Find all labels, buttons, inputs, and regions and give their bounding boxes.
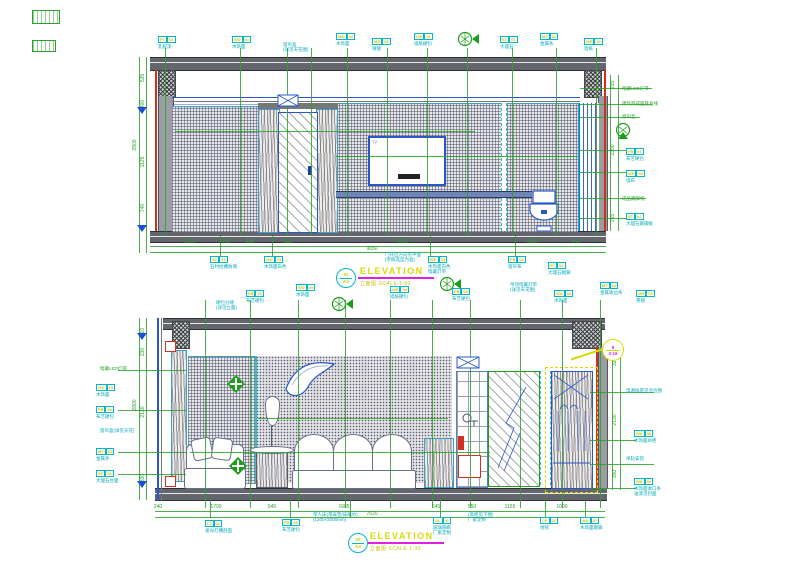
dimension-text: 2800 xyxy=(132,139,138,150)
level-marker-icon xyxy=(136,332,148,341)
material-tag: WD03木饰面白色 xyxy=(264,256,287,269)
material-tag-desc: 大理石 xyxy=(500,44,514,49)
material-tag-desc: 乳胶漆 xyxy=(158,44,172,49)
stone-mosaic-wall xyxy=(172,106,258,232)
material-tag-desc: 吊顶暗藏灯带 (详见天花图) xyxy=(510,282,537,292)
dimension-line xyxy=(175,131,475,132)
material-tag-desc: 单人床(带床垫/床尾巾) (1200×2000mm) xyxy=(313,512,358,522)
material-tag-desc: 木饰面 xyxy=(96,392,110,397)
elevation-title: ELEVATION xyxy=(360,266,424,276)
material-tag: 暗藏LED灯带 xyxy=(622,86,649,91)
dimension-text: 740 xyxy=(140,204,146,212)
dimension-text: 450 xyxy=(222,239,230,245)
material-tag: MT02金属收边条 xyxy=(600,282,623,295)
material-tag-desc: 木饰面白色 xyxy=(264,264,287,269)
leader-line xyxy=(146,318,147,500)
dimension-text: 550 xyxy=(468,504,476,510)
material-tag-desc: 发光灯槽剖面 xyxy=(205,528,232,533)
title-underline xyxy=(358,277,434,279)
material-tag: PT01乳胶漆 xyxy=(158,36,176,49)
level-marker-icon xyxy=(136,224,148,233)
elevation-subtitle: 立面图 SCALE 1:30 xyxy=(370,545,421,552)
leader-line xyxy=(596,48,597,236)
leader-line xyxy=(240,48,241,236)
dimension-line xyxy=(590,488,636,489)
leader-line xyxy=(618,75,619,231)
material-tag: MR02茶镜 xyxy=(636,290,655,303)
dimension-line xyxy=(190,452,490,453)
material-tag: 窗帘盒 xyxy=(622,114,636,119)
material-tag-desc: 墙布 xyxy=(626,178,635,183)
material-tag-desc: (高柜见下图) 厂家定制 xyxy=(468,512,494,522)
dimension-text: 7620 xyxy=(366,511,377,517)
dimension-text: 2800 xyxy=(132,399,138,410)
dimension-text: 2350 xyxy=(610,144,616,155)
drawing-number: 01 xyxy=(343,272,348,277)
wall-artwork xyxy=(282,357,338,403)
material-tag-desc: 暗藏LED灯带 xyxy=(100,366,127,371)
material-tag-desc: 木饰面 xyxy=(336,41,350,46)
wall-section-hatch xyxy=(572,321,602,349)
dimension-line xyxy=(118,410,186,411)
material-tag: (高柜见下图) 厂家定制 xyxy=(468,512,494,522)
material-tag-desc: 墙纸硬包 xyxy=(390,294,408,299)
dimension-text: 1000 xyxy=(556,504,567,510)
dimension-text: 235 xyxy=(610,81,616,89)
material-tag-desc: 电源插座见点位图 xyxy=(626,388,662,393)
title-bubble: 02 A3 xyxy=(348,533,368,553)
drawing-number: 02 xyxy=(355,537,360,542)
dimension-line xyxy=(580,150,626,151)
material-tag: WD04木饰面白色 暗藏灯带 xyxy=(428,256,451,274)
material-tag-desc: 硬包分缝 (详见立面) xyxy=(216,300,237,310)
leader-line xyxy=(545,500,546,518)
leader-line xyxy=(512,48,513,236)
top-elev-floor-slab xyxy=(150,231,606,243)
faucet-icon xyxy=(462,412,480,428)
section-marker-icon xyxy=(330,294,354,314)
sofa-pillow xyxy=(190,436,214,462)
material-tag-desc: 木饰面 xyxy=(232,44,246,49)
dimension-text: 240 xyxy=(154,504,162,510)
vent-symbol xyxy=(456,356,480,369)
wall-rail xyxy=(336,191,532,198)
detail-callout: 8 3-16 xyxy=(602,339,624,361)
material-tag: FB03布艺硬包 xyxy=(246,290,264,303)
section-marker-icon xyxy=(614,120,638,140)
material-tag-desc: 布艺硬包 xyxy=(626,156,644,161)
leader-line xyxy=(287,48,288,236)
sheet-mark xyxy=(32,10,60,24)
dimension-text: 2130 xyxy=(612,414,618,425)
leader-line xyxy=(427,48,428,236)
material-tag: 电源插座见点位图 xyxy=(626,388,662,393)
dimension-line xyxy=(118,474,186,475)
material-tag: MR01银镜 xyxy=(372,38,391,51)
ceiling-line xyxy=(172,97,580,98)
sheet-mark xyxy=(32,40,56,52)
material-tag-desc: 茶镜 xyxy=(636,298,645,303)
section-marker-icon xyxy=(456,29,480,49)
elevation-title: ELEVATION xyxy=(370,531,434,541)
panel-joint xyxy=(501,103,507,231)
tv-panel: TV xyxy=(368,136,446,186)
level-marker-icon xyxy=(136,106,148,115)
title-underline xyxy=(368,542,444,544)
bottom-elev-ceiling-beam xyxy=(163,318,605,330)
leader-line xyxy=(311,48,312,236)
dimension-text: 1310 xyxy=(184,239,195,245)
dimension-line xyxy=(258,418,448,419)
material-tag-desc: 暗藏LED灯带 xyxy=(622,86,649,91)
material-tag: ST02大理石踢脚 xyxy=(548,262,571,275)
dimension-line xyxy=(155,517,605,518)
red-lever xyxy=(458,436,464,450)
leader-line xyxy=(272,236,273,258)
material-tag: ST03石材拉槽防滑 xyxy=(210,256,237,269)
callout-sheet: 3-16 xyxy=(608,351,617,356)
leader-line xyxy=(387,48,388,236)
material-tag-desc: 金属条 xyxy=(96,456,110,461)
material-tag: 暗藏LED灯带 xyxy=(100,366,127,371)
material-tag-desc: 布艺硬包 xyxy=(452,296,470,301)
material-tag: WD08木饰面吊柜 xyxy=(634,430,657,443)
leader-line xyxy=(290,500,291,518)
wall-section-hatch xyxy=(584,70,602,98)
material-tag: FB02窗帘布 xyxy=(508,256,526,269)
cad-drawing-sheet: TV xyxy=(0,0,800,565)
material-tag: WD07木饰面踢脚 xyxy=(580,517,603,530)
leader-line xyxy=(467,48,468,236)
material-tag-desc: 木饰面 xyxy=(296,292,310,297)
material-tag: WD10木饰面 xyxy=(96,384,115,397)
material-tag-desc: 金属收边条 xyxy=(600,290,623,295)
track-block xyxy=(165,476,176,487)
dimension-line xyxy=(150,246,606,247)
level-diamond-icon xyxy=(228,456,248,476)
material-tag: WD02木饰面 xyxy=(336,33,355,46)
material-tag-desc: 玻璃隔断 厂家定制 xyxy=(433,525,451,535)
material-tag: 硬包分缝 (详见立面) xyxy=(216,300,237,310)
material-tag-desc: 建筑完成面基准线 xyxy=(622,101,658,106)
material-tag: ST02大理石踢脚板 xyxy=(626,213,653,226)
material-tag: 建筑完成面基准线 xyxy=(622,101,658,106)
dimension-text: 1650 xyxy=(526,239,537,245)
leader-line xyxy=(585,500,586,518)
material-tag: 单人床(带床垫/床尾巾) (1200×2000mm) xyxy=(313,512,358,522)
material-tag-desc: 大理石踢脚板 xyxy=(626,221,653,226)
mirror-reflection-lines xyxy=(490,373,536,483)
material-tag: 窗帘盒(详见天花) xyxy=(100,428,135,433)
material-tag: LT01发光灯槽剖面 xyxy=(205,520,232,533)
material-tag: 窗帘盒 (详见天花图) xyxy=(283,42,309,52)
bench-wood-panel xyxy=(424,438,454,488)
material-tag-desc: 吊轨安装 xyxy=(626,456,644,461)
dimension-text: 500 xyxy=(284,239,292,245)
dimension-text: 535 xyxy=(140,74,146,82)
dimension-text: 9650 xyxy=(366,246,377,252)
leader-line xyxy=(205,300,206,508)
tv-label: TV xyxy=(372,139,377,144)
material-tag-desc: 大理石踢脚 xyxy=(548,270,571,275)
material-tag-desc: 金属条 xyxy=(540,41,554,46)
bottom-elev-floor-slab xyxy=(155,488,607,501)
material-tag-desc: 布艺硬包 xyxy=(282,527,300,532)
dimension-text: 1155 xyxy=(505,504,516,510)
material-tag-desc: 木饰面收口条 油漆见封面 xyxy=(634,486,661,496)
material-tag: WD09木饰面收口条 油漆见封面 xyxy=(634,478,661,496)
leader-line xyxy=(345,300,346,508)
wardrobe-details xyxy=(552,373,590,485)
dimension-line xyxy=(150,252,606,253)
dimension-text: 1700 xyxy=(210,504,221,510)
vent-symbol xyxy=(277,94,299,107)
material-tag: WD05木饰面 xyxy=(296,284,315,297)
dimension-text: 1685 xyxy=(338,504,349,510)
top-elev-ceiling-beam xyxy=(150,57,606,71)
material-tag: CP01地毯 xyxy=(540,517,558,530)
leader-line xyxy=(430,236,431,258)
dimension-text: 2130 xyxy=(140,406,146,417)
dimension-text: 4350 xyxy=(396,239,407,245)
material-tag-desc: 窗帘盒 (详见天花图) xyxy=(283,42,309,52)
material-tag: 成品踢脚线 xyxy=(622,196,645,201)
ceiling-line xyxy=(172,101,580,102)
leader-line xyxy=(347,48,348,236)
level-diamond-icon xyxy=(226,374,246,394)
material-tag-desc: 布艺硬包 xyxy=(96,414,114,419)
material-tag: FB05布艺硬包 xyxy=(282,519,300,532)
material-tag-desc: 门开启方向见平面 (参照选型为准) xyxy=(385,252,421,262)
door-side-wood-panel xyxy=(258,109,280,233)
dimension-line xyxy=(580,172,626,173)
toilet xyxy=(526,190,564,232)
dimension-line xyxy=(155,511,605,512)
material-tag-desc: 墙纸 xyxy=(584,46,593,51)
material-tag-desc: 窗帘盒(详见天花) xyxy=(100,428,135,433)
drawing-sheet: A3 xyxy=(355,544,361,549)
leader-line xyxy=(390,300,391,508)
table-base xyxy=(256,452,288,488)
leader-line xyxy=(620,348,621,490)
material-tag: 门开启方向见平面 (参照选型为准) xyxy=(385,252,421,262)
material-tag-desc: 地毯 xyxy=(540,525,549,530)
material-tag-desc: 布艺硬包 xyxy=(246,298,264,303)
leader-line xyxy=(556,48,557,236)
material-tag: FB04布艺硬包 xyxy=(452,288,470,301)
material-tag-desc: 木饰面吊柜 xyxy=(634,438,657,443)
material-tag: MT03金属条 xyxy=(96,448,114,461)
door-side-wood-panel xyxy=(316,109,338,233)
dimension-line xyxy=(336,156,578,157)
leader-line xyxy=(432,300,433,508)
dimension-line xyxy=(118,452,186,453)
dimension-text: 215 xyxy=(610,214,616,222)
material-tag-desc: 窗帘盒 xyxy=(622,114,636,119)
title-bubble: 01 A3 xyxy=(336,268,356,288)
dimension-text: 230 xyxy=(140,348,146,356)
dimension-line xyxy=(590,440,636,441)
level-marker-icon xyxy=(136,480,148,489)
material-tag: ST01大理石 xyxy=(500,36,518,49)
leader-line xyxy=(250,300,251,508)
wall-section-hatch xyxy=(158,70,176,98)
leader-line xyxy=(165,48,166,236)
leader-line xyxy=(470,300,471,508)
material-tag-desc: 墙纸硬包 xyxy=(414,41,432,46)
dimension-text: 350 xyxy=(612,470,618,478)
material-tag-desc: 成品踢脚线 xyxy=(622,196,645,201)
dimension-text: 1125 xyxy=(140,157,146,168)
material-tag: MT01金属条 xyxy=(540,33,558,46)
material-tag: WP04墙纸硬包 xyxy=(390,286,409,299)
material-tag: FB06布艺硬包 xyxy=(96,406,114,419)
tv-logo-bar xyxy=(398,174,420,179)
material-tag-desc: 银镜 xyxy=(372,46,381,51)
material-tag-desc: 大理石台面 xyxy=(96,478,119,483)
material-tag-desc: 木饰面 xyxy=(554,298,568,303)
material-tag-desc: 木饰面踢脚 xyxy=(580,525,603,530)
material-tag: WD06木饰面 xyxy=(554,290,573,303)
material-tag-desc: 窗帘布 xyxy=(508,264,522,269)
dimension-line xyxy=(118,370,186,371)
dimension-text: 850 xyxy=(246,239,254,245)
leader-line xyxy=(298,300,299,508)
dimension-text: 645 xyxy=(268,504,276,510)
material-tag: FB01布艺硬包 xyxy=(626,148,644,161)
dimension-text: 645 xyxy=(432,504,440,510)
material-tag: GL01玻璃隔断 厂家定制 xyxy=(433,517,451,535)
material-tag: 吊顶暗藏灯带 (详见天花图) xyxy=(510,282,537,292)
dimension-text: 540 xyxy=(572,239,580,245)
material-tag: ST04大理石台面 xyxy=(96,470,119,483)
wall-finish-line xyxy=(155,70,157,231)
material-tag: WD01木饰面 xyxy=(232,36,251,49)
material-tag: WP01墙纸硬包 xyxy=(414,33,433,46)
dimension-line xyxy=(590,464,654,465)
dimension-line xyxy=(580,218,626,219)
leader-line xyxy=(600,300,601,508)
material-tag: 吊轨安装 xyxy=(626,456,644,461)
drawing-sheet: A3 xyxy=(343,279,349,284)
material-tag: WP02墙纸 xyxy=(584,38,603,51)
material-tag-desc: 石材拉槽防滑 xyxy=(210,264,237,269)
leader-line xyxy=(515,236,516,258)
material-tag-desc: 木饰面白色 暗藏灯带 xyxy=(428,264,451,274)
bed-mattress xyxy=(292,470,416,489)
elevation-subtitle: 立面图 SCALE 1:30 xyxy=(360,280,411,287)
track-block xyxy=(165,341,176,352)
material-tag: WP03墙布 xyxy=(626,170,645,183)
